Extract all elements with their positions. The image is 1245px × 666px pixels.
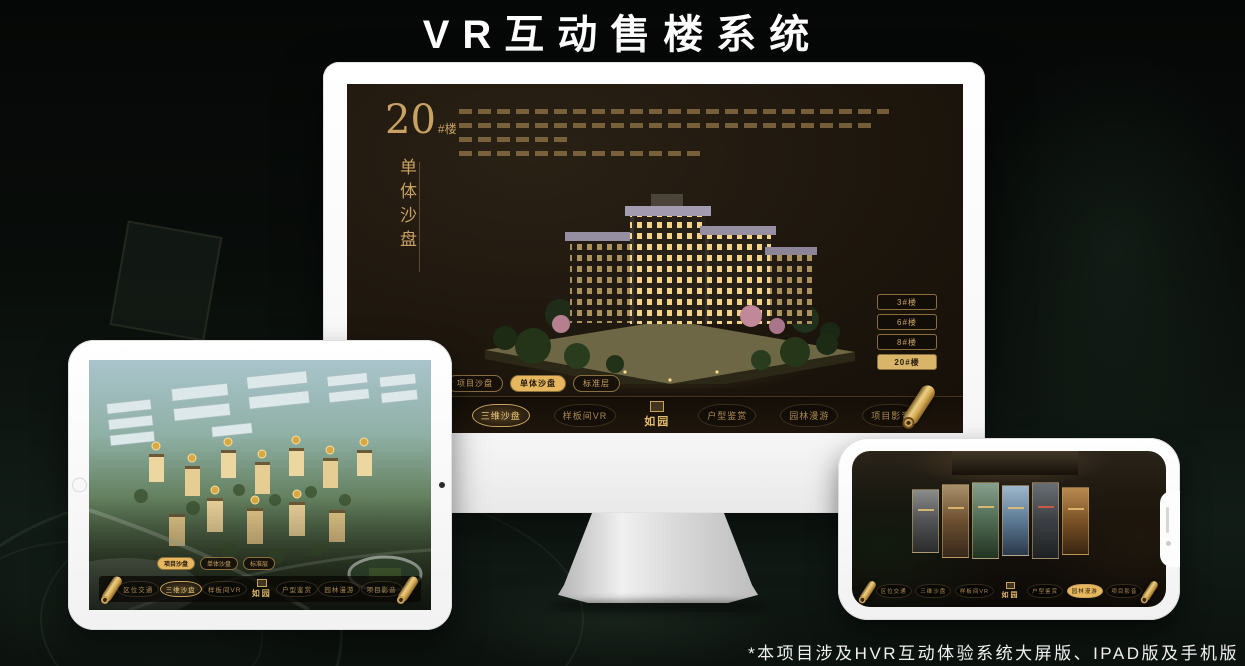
brand-logo: 如园 — [644, 401, 670, 429]
phone-device: 区位交通 三维沙盘 样板间VR 如园 户型鉴赏 园林漫游 项目影音 — [838, 438, 1180, 620]
brand-logo: 如园 — [252, 579, 272, 599]
nav-showroom-vr[interactable]: 样板间VR — [202, 581, 248, 597]
ipad-navbar: 区位交通 三维沙盘 样板间VR 如园 户型鉴赏 园林漫游 项目影音 — [99, 576, 421, 602]
camera-icon — [1166, 541, 1171, 546]
scroll-icon[interactable] — [859, 580, 878, 603]
gallery-panel[interactable] — [1002, 485, 1029, 556]
page-title: VR互动售楼系统 — [0, 2, 1245, 60]
headline-divider — [419, 162, 420, 272]
nav-unit-gallery[interactable]: 户型鉴赏 — [698, 404, 756, 427]
subtab-project-sandbox[interactable]: 项目沙盘 — [157, 557, 195, 570]
seal-icon — [1006, 582, 1015, 589]
aerial-sandbox-viewport[interactable] — [89, 360, 431, 610]
nav-project-media[interactable]: 项目影音 — [361, 581, 403, 597]
floor-button-8[interactable]: 8#楼 — [877, 334, 937, 350]
background-texture — [965, 50, 1245, 450]
subtab-single-sandbox[interactable]: 单体沙盘 — [510, 375, 566, 392]
building-3d-viewport[interactable] — [465, 154, 875, 384]
seal-icon — [650, 401, 664, 412]
monitor-stand-shadow — [548, 600, 768, 612]
ipad-subtabs: 项目沙盘 单体沙盘 标准层 — [157, 557, 275, 570]
nav-location-traffic[interactable]: 区位交通 — [876, 584, 912, 598]
interior-scene — [952, 451, 1078, 475]
subtab-standard-floor[interactable]: 标准层 — [243, 557, 275, 570]
seal-icon — [257, 579, 267, 587]
camera-icon — [439, 482, 445, 488]
home-button[interactable] — [72, 478, 87, 493]
floor-button-20[interactable]: 20#楼 — [877, 354, 937, 370]
subtab-standard-floor[interactable]: 标准层 — [573, 375, 620, 392]
nav-showroom-vr[interactable]: 样板间VR — [955, 584, 994, 598]
gallery-panel[interactable] — [1032, 482, 1059, 559]
nav-garden-roam[interactable]: 园林漫游 — [780, 404, 838, 427]
page-background: VR互动售楼系统 20#楼 单体沙盘 — [0, 0, 1245, 666]
footnote-caption: *本项目涉及HVR互动体验系统大屏版、IPAD版及手机版 — [748, 639, 1239, 664]
nav-unit-gallery[interactable]: 户型鉴赏 — [276, 581, 318, 597]
subtab-project-sandbox[interactable]: 项目沙盘 — [447, 375, 503, 392]
building-number: 20 — [385, 97, 436, 143]
phone-notch — [1160, 491, 1180, 567]
building-headline: 20#楼 — [385, 100, 457, 140]
phone-navbar: 区位交通 三维沙盘 样板间VR 如园 户型鉴赏 园林漫游 项目影音 — [864, 581, 1154, 601]
speaker-icon — [1166, 507, 1169, 533]
floor-button-6[interactable]: 6#楼 — [877, 314, 937, 330]
subtab-single-sandbox[interactable]: 单体沙盘 — [200, 557, 238, 570]
gallery-panel[interactable] — [972, 482, 999, 559]
scroll-icon[interactable] — [1141, 580, 1160, 603]
gallery-panel[interactable] — [1062, 487, 1089, 555]
ipad-screen: 项目沙盘 单体沙盘 标准层 区位交通 三维沙盘 样板间VR 如园 户型鉴赏 园林… — [89, 360, 431, 610]
nav-garden-roam[interactable]: 园林漫游 — [1067, 584, 1103, 598]
background-plaque — [110, 220, 223, 341]
nav-project-media[interactable]: 项目影音 — [1106, 584, 1142, 598]
sandbox-subtabs: 项目沙盘 单体沙盘 标准层 — [447, 375, 620, 392]
nav-3d-sandbox[interactable]: 三维沙盘 — [915, 584, 951, 598]
phone-screen: 区位交通 三维沙盘 样板间VR 如园 户型鉴赏 园林漫游 项目影音 — [852, 451, 1166, 607]
gallery-panel[interactable] — [942, 484, 969, 558]
monitor-stand — [558, 513, 758, 603]
nav-3d-sandbox[interactable]: 三维沙盘 — [472, 404, 530, 427]
nav-showroom-vr[interactable]: 样板间VR — [554, 404, 617, 427]
gallery-panel[interactable] — [912, 489, 939, 553]
brand-logo: 如园 — [1002, 582, 1020, 600]
floor-button-group: 3#楼 6#楼 8#楼 20#楼 — [877, 294, 937, 370]
nav-location-traffic[interactable]: 区位交通 — [117, 581, 159, 597]
nav-unit-gallery[interactable]: 户型鉴赏 — [1027, 584, 1063, 598]
headline-subtitle: 单体沙盘 — [394, 158, 419, 254]
nav-3d-sandbox[interactable]: 三维沙盘 — [160, 581, 202, 597]
building-number-suffix: #楼 — [438, 122, 457, 136]
ipad-device: 项目沙盘 单体沙盘 标准层 区位交通 三维沙盘 样板间VR 如园 户型鉴赏 园林… — [68, 340, 452, 630]
floor-button-3[interactable]: 3#楼 — [877, 294, 937, 310]
nav-garden-roam[interactable]: 园林漫游 — [318, 581, 360, 597]
